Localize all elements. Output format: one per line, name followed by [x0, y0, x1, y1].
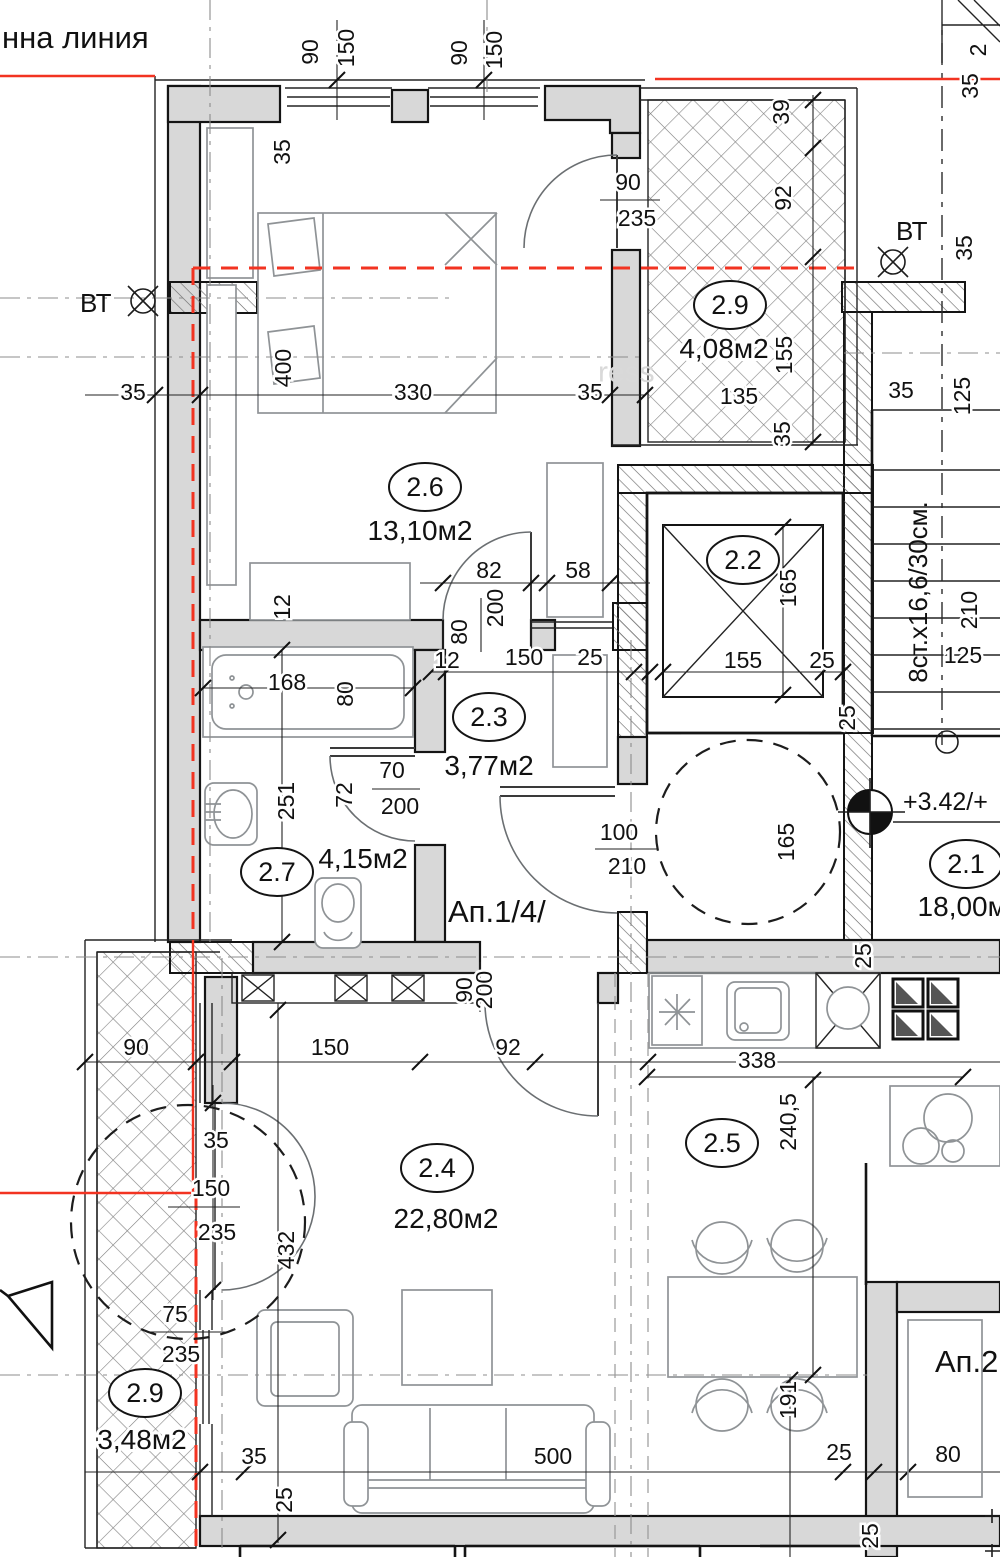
north-triangle-icon	[0, 1282, 52, 1348]
stair-newel-post	[936, 731, 958, 753]
bt-right-label: ВТ	[896, 216, 928, 246]
dimension-label: 100	[600, 819, 638, 845]
floor-plan-page: нна линия ВТ ВТ Ап.1/4/ Ап.2 8ст.х16,6/3…	[0, 0, 1000, 1557]
sink	[205, 783, 257, 845]
coffee-table	[402, 1290, 492, 1385]
dimension-label: 210	[956, 591, 982, 629]
room-label-2-4: 2.422,80м2	[394, 1144, 499, 1234]
window-balcony	[203, 1330, 209, 1424]
window-top-1	[287, 97, 390, 106]
regulation-line-label: нна линия	[2, 20, 149, 55]
dimension-label: 82	[476, 557, 502, 583]
bathtub	[203, 647, 413, 737]
corner-mark-label: 2	[965, 44, 991, 57]
room-number: 2.9	[711, 290, 749, 320]
dimension-label: 12	[269, 594, 295, 620]
dimension-label: 240,5	[775, 1093, 801, 1151]
dimension-label: 125	[949, 377, 975, 415]
dimension-label: 155	[724, 647, 762, 673]
dimension-label: 210	[608, 853, 646, 879]
room-label-2-6: 2.613,10м2	[368, 463, 473, 546]
dimension-label: 90	[615, 169, 641, 195]
dimension-label: 432	[273, 1231, 299, 1269]
dimension-label: 25	[850, 943, 876, 969]
vent-pipe-icon	[128, 286, 158, 316]
vent-shaft-kitchen	[816, 973, 880, 1048]
room-area: 18,00м2	[918, 891, 1000, 922]
dimension-label: 90	[297, 39, 323, 65]
turning-circle	[656, 740, 840, 924]
room-number: 2.6	[406, 472, 444, 502]
dimension-label: 35	[577, 379, 603, 405]
dimension-label: 90	[446, 40, 472, 66]
room-area: 3,48м2	[97, 1424, 186, 1455]
dimension-label: 150	[311, 1034, 349, 1060]
room-label-2-5: 2.5	[686, 1119, 758, 1167]
room-label-2-2: 2.2	[707, 536, 779, 584]
dimension-label: 165	[773, 823, 799, 861]
dining-table	[668, 1220, 857, 1431]
dimension-label: 80	[332, 681, 358, 707]
dimension-label: 35	[203, 1127, 229, 1153]
chair	[767, 1220, 827, 1272]
dimension-label: 25	[577, 644, 603, 670]
room-area: 13,10м2	[368, 515, 473, 546]
stairs-label: 8ст.х16,6/30см.	[903, 501, 933, 683]
dimension-label: 80	[446, 619, 472, 645]
hall-cabinet-1	[547, 463, 603, 617]
room-area: 3,77м2	[444, 750, 533, 781]
dimension-label: 251	[273, 782, 299, 820]
dimension-label: 168	[268, 669, 306, 695]
vent-pipe-icon	[878, 247, 908, 277]
vent-block-windows	[242, 975, 424, 1001]
dimension-label: 150	[505, 644, 543, 670]
dimension-label: 92	[770, 185, 796, 211]
dimension-label: 135	[720, 383, 758, 409]
chair	[692, 1222, 752, 1274]
dimension-label: 35	[888, 377, 914, 403]
dimension-label: 35	[269, 139, 295, 165]
dimension-label: 25	[857, 1523, 883, 1549]
watermark-text: ress	[598, 356, 655, 389]
floor-plan-drawing: нна линия ВТ ВТ Ап.1/4/ Ап.2 8ст.х16,6/3…	[0, 0, 1000, 1557]
dimension-label: 25	[809, 647, 835, 673]
room-number: 2.7	[258, 857, 296, 887]
room-label-2-3: 2.33,77м2	[444, 693, 533, 781]
dimension-label: 35	[241, 1443, 267, 1469]
dimension-label: 235	[198, 1219, 236, 1245]
freezer-icon	[659, 994, 695, 1030]
dimension-label: 400	[270, 349, 296, 387]
elevation-label: +3.42/+	[903, 788, 988, 816]
dimension-label: 39	[768, 99, 794, 125]
dimension-label: 150	[192, 1175, 230, 1201]
dimension-label: 35	[951, 235, 977, 261]
dimension-label: 12	[434, 647, 460, 673]
dimension-label: 35	[957, 73, 983, 99]
dimension-label: 200	[381, 793, 419, 819]
dimension-label: 75	[162, 1301, 188, 1327]
dimension-label: 155	[771, 336, 797, 374]
armchair	[257, 1310, 353, 1406]
cooktop	[890, 1086, 1000, 1166]
door-balcony-double	[222, 1103, 315, 1290]
dimension-label: 92	[495, 1034, 521, 1060]
dimension-label: 500	[534, 1443, 572, 1469]
chair	[692, 1379, 752, 1431]
dimension-label: 25	[834, 705, 860, 731]
dimension-label: 35	[769, 421, 795, 447]
room-number: 2.9	[126, 1378, 164, 1408]
dimension-label: 125	[944, 642, 982, 668]
dimension-label: 150	[333, 29, 359, 67]
room-number: 2.1	[947, 849, 985, 879]
dimension-label: 25	[826, 1439, 852, 1465]
room-area: 22,80м2	[394, 1203, 499, 1234]
dimension-label: 35	[120, 379, 146, 405]
toilet	[315, 878, 361, 948]
door-bedroom-terrace	[524, 155, 617, 248]
dimension-label: 150	[481, 31, 507, 69]
dimension-label: 330	[394, 379, 432, 405]
staircase-treads	[872, 410, 1000, 729]
dimension-label: 165	[775, 569, 801, 607]
room-area: 4,08м2	[679, 333, 768, 364]
dimension-label: 72	[331, 782, 357, 808]
room-number: 2.5	[703, 1128, 741, 1158]
dimension-label: 58	[565, 557, 591, 583]
electrical-boxes	[893, 979, 958, 1039]
apartment-label: Ап.1/4/	[448, 894, 546, 929]
apartment2-label: Ап.2	[935, 1344, 998, 1379]
dimension-label: 200	[482, 589, 508, 627]
room-area: 4,15м2	[318, 843, 407, 874]
dimension-label: 338	[738, 1047, 776, 1073]
room-number: 2.4	[418, 1153, 456, 1183]
dimension-label: 25	[271, 1487, 297, 1513]
dimension-label: 90	[123, 1034, 149, 1060]
room-number: 2.3	[470, 702, 508, 732]
dimension-label: 70	[379, 757, 405, 783]
dimension-label: 200	[471, 971, 497, 1009]
room-label-2-1: 2.118,00м2	[918, 840, 1000, 922]
dimension-label: 191	[775, 1381, 801, 1419]
staircase	[872, 410, 1000, 753]
room-number: 2.2	[724, 545, 762, 575]
elevator-shaft	[647, 493, 843, 733]
dimension-label: 235	[162, 1341, 200, 1367]
bt-left-label: ВТ	[80, 288, 112, 318]
dimension-label: 80	[935, 1441, 961, 1467]
dimension-label: 235	[618, 205, 656, 231]
